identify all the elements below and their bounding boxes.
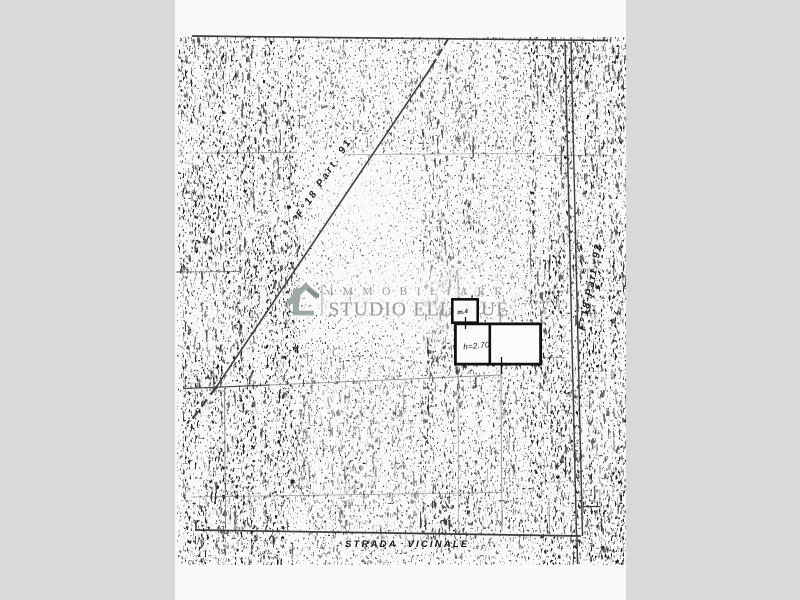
svg-text:IMMOBILIARE: IMMOBILIARE (330, 286, 511, 298)
svg-text:STUDIO ELLEDUE: STUDIO ELLEDUE (329, 300, 510, 321)
svg-text:STRADA VICINALE: STRADA VICINALE (345, 539, 469, 550)
